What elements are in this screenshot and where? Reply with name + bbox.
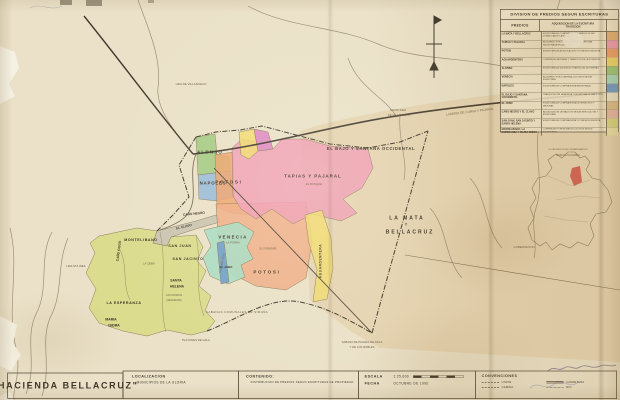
localizacion-label: LOCALIZACION: [132, 375, 238, 379]
legend-color-swatch: [606, 101, 618, 109]
convencion-label: CAMINO: [502, 386, 514, 389]
label-sabanas-comunales: SABANAS COMUNALES DE SIMAÑA: [206, 310, 268, 313]
legend-predio-desc: COMPRA DE POSESIONES A COLONOS SEGUN ESC…: [542, 127, 606, 135]
map-title: "HACIENDA BELLACRUZ": [0, 380, 139, 390]
label-inset-subtitle: MAPA DE COLOMBIA: [556, 154, 580, 156]
legend-predio-name: EL BAJO Y SANTANA OCCIDENTAL: [501, 93, 542, 101]
escala-value: 1:25.000: [393, 375, 409, 379]
legend-predio-name: MONTELIBANO, LA ESPERANZA Y MARIA ISIDRA: [501, 127, 542, 135]
legend-color-swatch: [606, 40, 618, 48]
label-hda-sta-ines: HDA STA INES: [67, 265, 86, 268]
label-region-cano-negro: CAÑO NEGRO: [183, 211, 205, 216]
legend-predio-name: AGUARDENTERA: [501, 58, 542, 66]
label-cano-ciego: CAÑO CIEGO: [116, 241, 122, 262]
legend-predio-desc: TRADICION POR HERENCIA Y ESCRITURA DE PA…: [542, 93, 606, 101]
label-region-el-bajo: EL BAJO Y SANTANA OCCIDENTAL: [327, 147, 415, 151]
label-region-san-jacinto: SAN JACINTO: [173, 257, 204, 261]
legend-predio-name: EL JOBO: [501, 101, 542, 109]
label-los-kioskos: LOS KIOSKOS: [166, 294, 182, 296]
legend-color-swatch: [606, 66, 618, 74]
scale-bar: [413, 375, 464, 378]
legend-title: DIVISION DE PREDIOS SEGUN ESCRITURAS: [501, 10, 618, 20]
legend-row: TAPIAS Y PAJARALADQUIRIDO POR COMPRA SEG…: [501, 40, 618, 49]
legend-color-swatch: [606, 84, 618, 92]
label-region-la-mata: LA MATA: [389, 215, 425, 220]
legend-row: ALONSOESCRITURA DE SUCESION Y PARTICION …: [501, 66, 618, 75]
label-el-porvenir: EL PORVENIR: [260, 248, 277, 251]
escala-label: ESCALA: [365, 375, 394, 379]
label-region-bellacruz: BELLACRUZ: [386, 229, 435, 234]
label-region-potosi-norte: POTOSI: [215, 180, 242, 184]
legend-color-swatch: [606, 127, 618, 135]
label-region-santa-helena-1: SANTA: [170, 279, 181, 282]
legend-rows: LA MATA Y BELLACRUZESCRITURA DE COMPRAVE…: [501, 32, 618, 136]
label-region-san-juan: SAN JUAN: [168, 244, 191, 248]
label-region-venecia: VENECIA: [218, 235, 247, 239]
legend-color-swatch: [606, 119, 618, 127]
contenido-label: CONTENIDO:: [246, 375, 358, 379]
legend-color-swatch: [606, 58, 618, 66]
legend-color-swatch: [606, 110, 618, 118]
convencion-item: RIO: [546, 386, 605, 389]
legend-predio-desc: ESCRITURA DE COMPRAVENTA REGISTRADA: [542, 84, 606, 92]
label-region-santa-helena-2: HELENA: [170, 285, 184, 288]
scanned-map-sheet: ALONSONAPOLESPOTOSITAPIAS Y PAJARALEL BO…: [0, 0, 620, 400]
convenciones-grid: LIMITECARRETERACAMINORIO: [482, 381, 605, 389]
label-el-bosque: EL BOSQUE: [306, 183, 322, 186]
legend-color-swatch: [606, 32, 618, 40]
legend-predio-name: ALONSO: [501, 66, 542, 74]
legend-predio-desc: ESCRITURA DE SUCESION Y PARTICION DE TIE…: [542, 66, 606, 74]
legend-predio-desc: ESCRITURA DE ADJUDICACION Y POSESION INS…: [542, 49, 606, 57]
map-title-box: "HACIENDA BELLACRUZ": [7, 373, 123, 399]
label-region-alonso: ALONSO: [197, 150, 223, 154]
convencion-label: RIO: [566, 386, 571, 389]
label-region-potosi-sur: POTOSI: [253, 270, 280, 274]
legend-col-predios: PREDIOS: [501, 20, 540, 31]
label-gobernacion: GOBERNACION: [514, 246, 535, 249]
legend-predio-name: LA MATA Y BELLACRUZ: [501, 32, 542, 40]
legend-col-color: [606, 20, 618, 31]
legend-row: SAN JUAN, SAN JACINTO Y SANTA HELENAESCR…: [501, 119, 618, 128]
label-guarumo-viejo: GUARUMO VIEJO: [219, 253, 226, 273]
legend-predio-desc: ESCRITURA DE COMPRAVENTA Y POSESION INSC…: [542, 119, 606, 127]
convencion-item: CAMINO: [482, 386, 541, 389]
legend-row: VENECIAADQUIRIDO POR COMPRA A COLONOS SE…: [501, 75, 618, 84]
legend-row: EL JOBOESCRITURA DE COMPRAVENTA DE DEREC…: [501, 101, 618, 110]
fecha-value: OCTUBRE DE 1990: [393, 381, 428, 385]
legend-predio-name: NAPOLES: [501, 84, 542, 92]
label-region-maria-isidra-1: MARIA: [105, 318, 116, 321]
legend-predio-name: CAÑO NEGRO Y EL CLAVO: [501, 110, 542, 118]
legend-color-swatch: [606, 49, 618, 57]
legend-row: EL BAJO Y SANTANA OCCIDENTALTRADICION PO…: [501, 93, 618, 102]
legend-row: AGUARDENTERACOMPRA DE MEJORAS Y TRADICIO…: [501, 58, 618, 67]
convenciones-label: CONVENCIONES: [482, 374, 617, 378]
legend-color-swatch: [606, 75, 618, 83]
legend-predio-desc: ADJUDICACION DE BALDIOS SEGUN RESOLUCION…: [542, 110, 606, 118]
paper-blot: [563, 33, 584, 48]
label-vencelino: (VENCELINO): [166, 299, 181, 301]
localizacion-box: LOCALIZACION MUNICIPIOS DE LA GLORIA: [123, 371, 239, 399]
label-region-la-mata-y: Y: [405, 223, 407, 226]
legend-predio-name: SAN JUAN, SAN JACINTO Y SANTA HELENA: [501, 119, 542, 127]
legend-predio-desc: ESCRITURA DE COMPRAVENTA DE DERECHOS Y M…: [542, 101, 606, 109]
convencion-symbol: [546, 387, 563, 388]
legend-row: POTOSIESCRITURA DE ADJUDICACION Y POSESI…: [501, 49, 618, 58]
convenciones-box: CONVENCIONES LIMITECARRETERACAMINORIO: [475, 371, 617, 399]
contenido-box: CONTENIDO: DISTRIBUCION DE PREDIOS SEGUN…: [238, 371, 359, 399]
label-la-porfia: LA PORFIA: [226, 242, 240, 245]
label-region-la-esperanza: LA ESPERANZA: [106, 301, 141, 305]
legend-row: MONTELIBANO, LA ESPERANZA Y MARIA ISIDRA…: [501, 127, 618, 135]
convencion-item: CARRETERA: [546, 381, 605, 384]
legend-header: PREDIOS ADQUISICION DE LA ESCRITURA TRAD…: [501, 20, 618, 32]
contenido-value: DISTRIBUCION DE PREDIOS SEGUN ESCRITURAS…: [251, 381, 358, 384]
localizacion-value: MUNICIPIOS DE LA GLORIA: [137, 381, 238, 385]
legend-col-adquisicion: ADQUISICION DE LA ESCRITURA TRADICION: [540, 20, 606, 31]
convencion-symbol: [482, 382, 499, 383]
legend-predio-name: VENECIA: [501, 75, 542, 83]
legend-color-swatch: [606, 93, 618, 101]
label-santa-ines-1: SANTA INES: [390, 109, 406, 112]
convencion-symbol: [546, 381, 563, 383]
convencion-symbol: [482, 387, 499, 388]
legend-row: NAPOLESESCRITURA DE COMPRAVENTA REGISTRA…: [501, 84, 618, 93]
label-region-aguardentera: AGUARDENTERA: [319, 244, 322, 278]
label-y-de-los-robles: Y DE LOS ROBLES: [350, 346, 375, 349]
label-la-ceiba: LA CEIBA: [143, 263, 155, 266]
convencion-label: CARRETERA: [566, 381, 584, 384]
convencion-item: LIMITE: [482, 381, 541, 384]
label-ladero-curva: LADERO DE CURVA Y PAJARAL: [446, 107, 494, 116]
label-inset-title: LOCALIZACION DEL DEPARTAMENTO: [548, 149, 587, 151]
label-playones-gala: PLAYONES DE GALA: [182, 339, 210, 342]
legend-predio-desc: COMPRA DE MEJORAS Y TRADICION DE LA POSE…: [542, 58, 606, 66]
label-sabana-palmas: SABANA DE PALMAS DE AVILA: [342, 341, 383, 344]
label-santa-ines-2: DE VILLANUEVO: [388, 114, 410, 117]
convencion-label: LIMITE: [502, 381, 512, 384]
label-region-maria-isidra-2: ISIDRA: [108, 324, 120, 327]
label-region-tapias-pajaral: TAPIAS Y PAJARAL: [284, 174, 341, 178]
legend-table: DIVISION DE PREDIOS SEGUN ESCRITURAS PRE…: [500, 9, 619, 132]
label-region-montelibano: MONTELIBANO: [124, 238, 157, 242]
escala-fecha-box: ESCALA 1:25.000 FECHA OCTUBRE DE 1990: [358, 371, 476, 399]
legend-predio-name: TAPIAS Y PAJARAL: [501, 40, 542, 48]
legend-predio-name: POTOSI: [501, 49, 542, 57]
legend-row: LA MATA Y BELLACRUZESCRITURA DE COMPRAVE…: [501, 32, 618, 41]
legend-predio-desc: ADQUIRIDO POR COMPRA A COLONOS SEGUN ESC…: [542, 75, 606, 83]
legend-row: CAÑO NEGRO Y EL CLAVOADJUDICACION DE BAL…: [501, 110, 618, 119]
fecha-label: FECHA: [365, 381, 394, 385]
label-region-el-clavo: EL CLAVO: [176, 224, 192, 231]
label-hda-villanuevo: HDA DE VILLANUEVO: [176, 82, 207, 85]
